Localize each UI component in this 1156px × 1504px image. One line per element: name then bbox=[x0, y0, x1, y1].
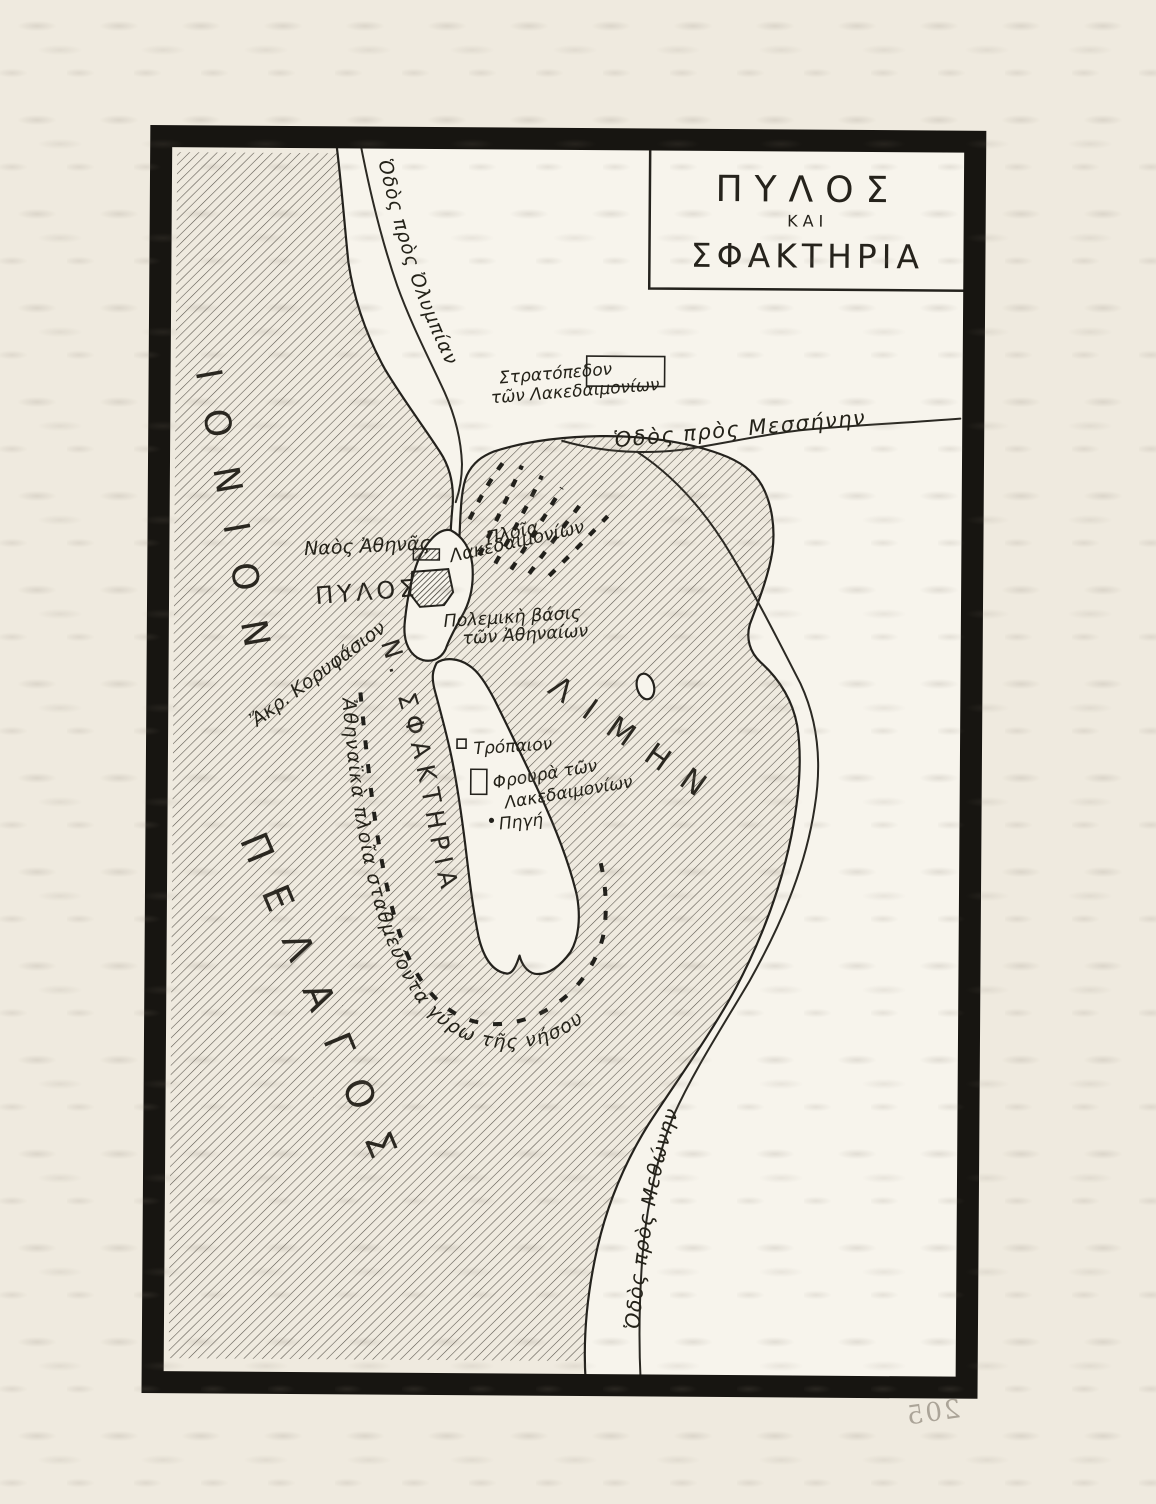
map-title-line3: ΣΦΑΚΤΗΡΙΑ bbox=[691, 236, 925, 277]
map-title-line2: ΚΑΙ bbox=[787, 211, 828, 230]
spring-dot bbox=[489, 818, 494, 823]
pylos-sphacteria-map: ΙΟΝΙΟΝ ΠΕΛΑΓΟΣ Ν. ΣΦΑΚΤΗΡΙΑ ΛΙΜΗΝ Ὁδὸς π… bbox=[0, 0, 1156, 1504]
book-page: ΙΟΝΙΟΝ ΠΕΛΑΓΟΣ Ν. ΣΦΑΚΤΗΡΙΑ ΛΙΜΗΝ Ὁδὸς π… bbox=[0, 0, 1156, 1500]
map-title-line1: ΠΥΛΟΣ bbox=[715, 169, 900, 211]
map-figure-wrap: ΙΟΝΙΟΝ ΠΕΛΑΓΟΣ Ν. ΣΦΑΚΤΗΡΙΑ ΛΙΜΗΝ Ὁδὸς π… bbox=[0, 0, 1156, 1504]
title-box: ΠΥΛΟΣ ΚΑΙ ΣΦΑΚΤΗΡΙΑ bbox=[649, 150, 966, 290]
